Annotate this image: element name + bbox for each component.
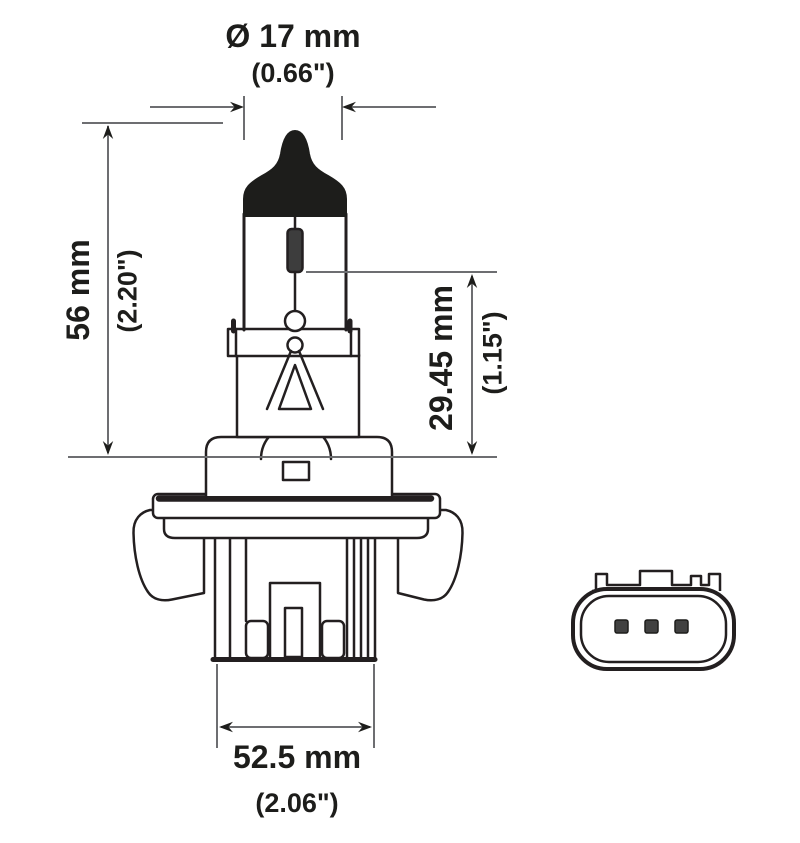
bulb-lower-connector xyxy=(213,537,375,660)
label-light-center-inch: (1.15") xyxy=(477,311,507,394)
connector-pins xyxy=(615,620,688,633)
label-diameter-mm: Ø 17 mm xyxy=(225,18,360,54)
bulb-dimension-diagram: Ø 17 mm (0.66") 56 mm (2.20") 29.45 mm (… xyxy=(0,0,800,843)
bulb-front-view xyxy=(133,131,462,660)
label-diameter-inch: (0.66") xyxy=(251,58,334,88)
label-height-inch: (2.20") xyxy=(112,249,142,332)
bulb-flange-plate xyxy=(153,494,440,518)
label-base-width-mm: 52.5 mm xyxy=(233,739,361,775)
bulb-flange-lip xyxy=(164,517,428,538)
label-height-mm: 56 mm xyxy=(60,239,96,340)
label-light-center-mm: 29.45 mm xyxy=(423,285,459,431)
technical-drawing-page: Ø 17 mm (0.66") 56 mm (2.20") 29.45 mm (… xyxy=(0,0,800,843)
bulb-glass-tip xyxy=(244,131,346,216)
connector-face-view xyxy=(573,571,734,669)
label-base-width-inch: (2.06") xyxy=(255,788,338,818)
